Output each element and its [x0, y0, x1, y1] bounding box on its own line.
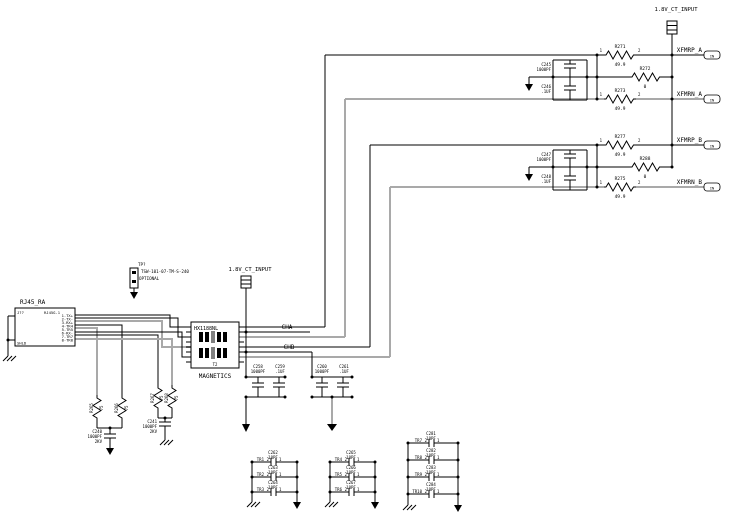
bank-1-caps[interactable] — [271, 458, 276, 496]
rating-c241: 2KV — [150, 429, 158, 434]
tp-ref: TP? — [138, 262, 146, 267]
ref-r277: R277 — [615, 134, 626, 140]
pin2-r277: 2 — [638, 138, 641, 143]
rj45-title: RJ45_RA — [20, 299, 46, 306]
wires-bypass-2 — [312, 352, 352, 424]
tp-note: OPTIONAL — [139, 276, 160, 281]
val-r266: 75 — [124, 405, 129, 410]
val-r277: 49.9 — [615, 152, 626, 158]
val-c262: 10PF — [268, 455, 278, 460]
capacitor-c258[interactable] — [252, 377, 264, 397]
earth-gnd-bank-3 — [454, 505, 462, 512]
testpoint-header[interactable] — [130, 268, 138, 292]
val-r272: 0 — [644, 84, 647, 90]
offpage-tag-text-b1: IN — [710, 145, 714, 149]
net-tr2: TR2 — [257, 472, 265, 477]
val-c283: 10PF — [426, 470, 436, 475]
net-label-xfmrp-a: XFMRP_A — [677, 47, 703, 54]
earth-gnd-testpoint — [130, 292, 138, 299]
tp-part: TSW-101-07-TM-S-240 — [141, 269, 189, 274]
ref-r268: R268 — [164, 393, 169, 403]
val-c263: 10PF — [268, 470, 278, 475]
pin1-tr3: 1 — [279, 487, 282, 492]
net-label-xfmrn-b: XFMRN_B — [677, 179, 703, 186]
pin2-r273: 2 — [638, 92, 641, 97]
net-label-chb: CHB — [284, 344, 295, 351]
wires-group-a — [325, 55, 704, 337]
power-net-label-mid: 1.8V_CT_INPUT — [228, 267, 272, 273]
ref-r265: R265 — [89, 403, 94, 413]
val-c265: 10PF — [346, 455, 356, 460]
power-flag-mid[interactable] — [241, 276, 251, 288]
val-c258: 1000PF — [251, 369, 266, 374]
capacitor-c240[interactable] — [104, 434, 116, 438]
magnetics-ref: T2 — [213, 362, 218, 367]
chassis-gnd-bank-3 — [403, 505, 416, 510]
pin1-tr9: 1 — [437, 472, 440, 477]
pin1-tr10: 1 — [437, 489, 440, 494]
offpage-tag-text-a2: IN — [710, 99, 714, 103]
earth-gnd-bank-1 — [293, 502, 301, 509]
power-net-label-top: 1.8V_CT_INPUT — [654, 7, 698, 13]
net-tr4: TR4 — [335, 457, 343, 462]
earth-gnd-bypass-2 — [327, 424, 337, 431]
ref-r288: R288 — [640, 156, 651, 162]
val-c259: .1UF — [275, 369, 285, 374]
schematic-canvas[interactable]: 1.8V_CT_INPUT 1.8V_CT_INPUT XFMRP_A XFMR… — [0, 0, 737, 518]
wires-rj45-fanout — [8, 315, 191, 395]
val-c284: 10PF — [426, 487, 436, 492]
pin1-r275: 1 — [600, 180, 603, 185]
capacitor-c241[interactable] — [159, 422, 171, 426]
net-tr10: TR10 — [412, 489, 422, 494]
gnd-arrow-group-b — [525, 167, 533, 181]
power-flag-top[interactable] — [667, 21, 677, 34]
val-c282: 10PF — [426, 453, 436, 458]
resistor-r271[interactable] — [604, 51, 636, 59]
chassis-gnd-bob-2 — [160, 436, 173, 445]
rj45-ref: J?? — [17, 310, 24, 315]
pin1-r271: 1 — [600, 48, 603, 53]
chassis-gnd-rj45 — [3, 352, 16, 361]
net-tr9: TR9 — [415, 472, 423, 477]
earth-gnd-bob-1 — [106, 448, 114, 455]
resistor-r277[interactable] — [604, 141, 636, 149]
val-c264: 10PF — [268, 485, 278, 490]
val-r268: 75 — [174, 395, 179, 400]
net-label-cha: CHA — [282, 324, 293, 331]
schematic-page: 1.8V_CT_INPUT 1.8V_CT_INPUT XFMRP_A XFMR… — [0, 0, 737, 518]
pin1-r273: 1 — [600, 92, 603, 97]
wires-bob-2 — [158, 411, 172, 436]
ref-r271: R271 — [615, 44, 626, 50]
offpage-tag-text-a1: IN — [710, 55, 714, 59]
val-r273: 49.9 — [615, 106, 626, 112]
ref-r266: R266 — [114, 403, 119, 413]
pin2-r271: 2 — [638, 48, 641, 53]
ref-r273: R273 — [615, 88, 626, 94]
val-c246: .1UF — [541, 89, 551, 94]
ref-r275: R275 — [615, 176, 626, 182]
rj45-shield: SHLD — [17, 341, 27, 346]
magnetics-label: MAGNETICS — [199, 373, 232, 380]
ref-r267: R267 — [150, 393, 155, 403]
bank-2-caps[interactable] — [349, 458, 354, 496]
val-r265: 75 — [99, 405, 104, 410]
val-c260: 1000PF — [315, 369, 330, 374]
resistor-r288[interactable] — [630, 163, 662, 171]
val-c266: 10PF — [346, 470, 356, 475]
chassis-gnd-bank-2 — [325, 502, 338, 507]
wires-group-b — [370, 145, 704, 357]
junction-dots — [7, 54, 674, 496]
pin1-tr7: 1 — [437, 438, 440, 443]
offpage-tag-text-b2: IN — [710, 187, 714, 191]
capacitor-c247[interactable] — [564, 150, 576, 167]
gnd-arrow-group-a — [525, 77, 533, 91]
val-c281: 10PF — [426, 436, 436, 441]
val-r275: 49.9 — [615, 194, 626, 200]
pin1-tr5: 1 — [357, 472, 360, 477]
pin1-tr6: 1 — [357, 487, 360, 492]
val-r271: 49.9 — [615, 62, 626, 68]
wires-magnetics-outputs — [239, 327, 390, 357]
capacitor-c260[interactable] — [316, 377, 328, 397]
val-r288: 0 — [644, 174, 647, 180]
rj45-pin-8: 8-TR8 — [62, 338, 74, 343]
net-tr7: TR7 — [415, 438, 423, 443]
val-c248: .1UF — [541, 179, 551, 184]
capacitor-c245[interactable] — [564, 60, 576, 77]
capacitor-c261[interactable] — [337, 377, 349, 397]
ref-r272: R272 — [640, 66, 651, 72]
pin1-tr1: 1 — [279, 457, 282, 462]
net-label-xfmrp-b: XFMRP_B — [677, 137, 703, 144]
wires-bypass-1 — [246, 377, 285, 424]
gnd-arrow-bypass-1 — [242, 424, 250, 432]
earth-gnd-bank-2 — [371, 502, 379, 509]
pin1-r277: 1 — [600, 138, 603, 143]
resistor-r272[interactable] — [630, 73, 662, 81]
pin1-tr4: 1 — [357, 457, 360, 462]
net-tr8: TR8 — [415, 455, 423, 460]
magnetics-pin-stubs — [186, 327, 244, 362]
pin1-tr8: 1 — [437, 455, 440, 460]
resistor-r275[interactable] — [604, 183, 636, 191]
val-c245: 1000PF — [537, 67, 552, 72]
val-c267: 10PF — [346, 485, 356, 490]
pin2-r275: 2 — [638, 180, 641, 185]
chassis-gnd-bank-1 — [247, 502, 260, 507]
net-tr3: TR3 — [257, 487, 265, 492]
val-c247: 1000PF — [537, 157, 552, 162]
rating-c240: 2KV — [95, 439, 103, 444]
capacitor-c259[interactable] — [273, 377, 285, 397]
pin1-tr2: 1 — [279, 472, 282, 477]
net-tr6: TR6 — [335, 487, 343, 492]
resistor-r273[interactable] — [604, 95, 636, 103]
capacitor-c246[interactable] — [564, 77, 576, 100]
rj45-part: RJ45G-1 — [44, 310, 61, 315]
net-tr1: TR1 — [257, 457, 265, 462]
net-label-xfmrn-a: XFMRN_A — [677, 91, 703, 98]
magnetics-part: HX1188NL — [194, 326, 218, 332]
val-c261: .1UF — [339, 369, 349, 374]
net-tr5: TR5 — [335, 472, 343, 477]
